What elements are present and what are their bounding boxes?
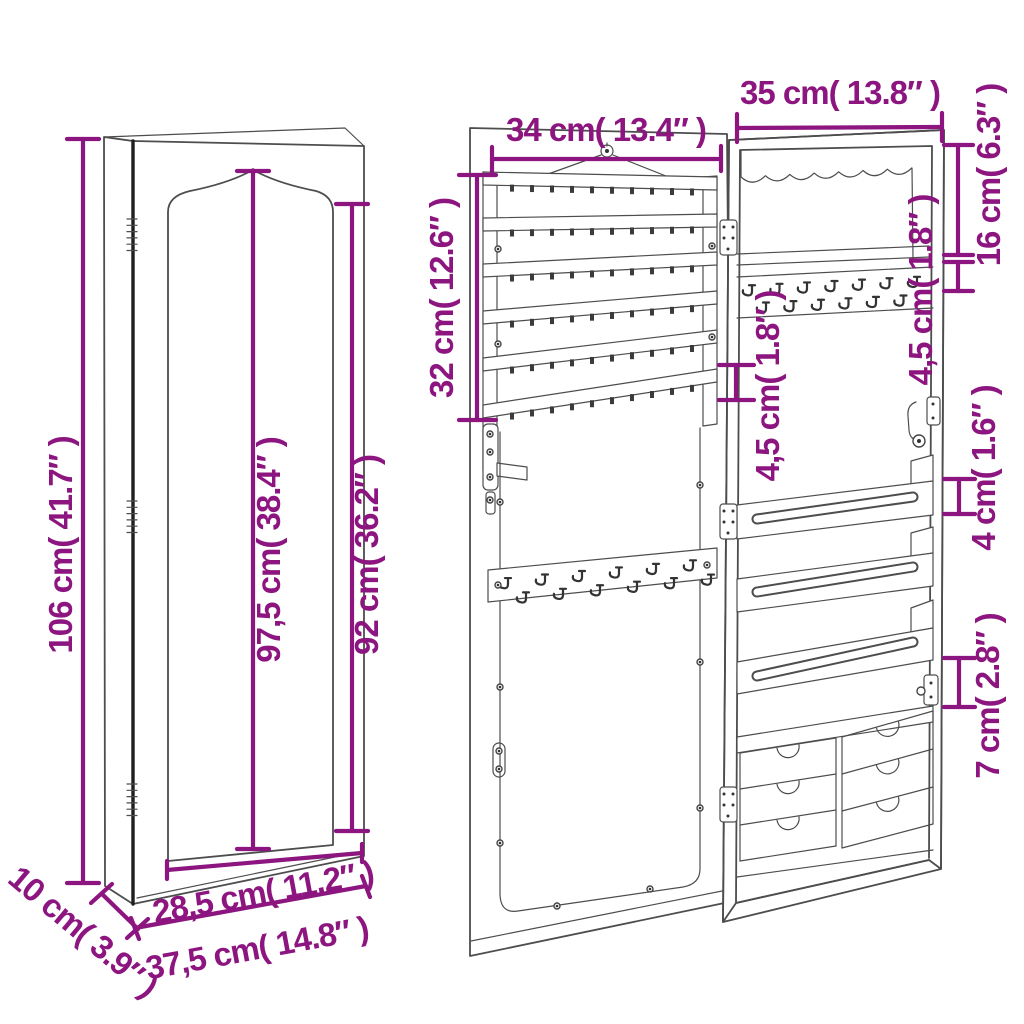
dim-mirror-height-label: 97,5 cm( 38.4″ ) bbox=[250, 437, 287, 662]
dim-tray-height: 4 cm( 1.6″ ) bbox=[944, 385, 1002, 550]
dim-overall-height: 106 cm( 41.7″ ) bbox=[42, 139, 99, 883]
dim-shelf-clearance-label: 4,5 cm( 1.8″ ) bbox=[902, 195, 939, 386]
dim-drawer-clearance-label: 7 cm( 2.8″ ) bbox=[969, 613, 1006, 778]
dim-cabinet-width-label: 35 cm( 13.8″ ) bbox=[740, 74, 940, 111]
dim-front-height-label: 92 cm( 36.2″ ) bbox=[348, 455, 385, 655]
open-door-view bbox=[470, 128, 734, 956]
dim-door-rack-spacing-label: 4,5 cm( 1.8″ ) bbox=[749, 291, 786, 482]
dim-door-rack-width-label: 34 cm( 13.4″ ) bbox=[506, 111, 706, 148]
dim-top-compartment-height-label: 16 cm( 6.3″ ) bbox=[970, 84, 1007, 267]
dim-overall-height-label: 106 cm( 41.7″ ) bbox=[42, 436, 79, 653]
door-outline bbox=[470, 128, 734, 956]
dim-top-compartment-height: 16 cm( 6.3″ ) bbox=[944, 84, 1007, 267]
closed-cabinet-view bbox=[104, 128, 364, 904]
dimension-diagram: 106 cm( 41.7″ ) 97,5 cm( 38.4″ ) 92 cm( … bbox=[0, 0, 1024, 1024]
dim-tray-height-label: 4 cm( 1.6″ ) bbox=[965, 385, 1002, 550]
dim-door-rack-height-label: 32 cm( 12.6″ ) bbox=[423, 198, 460, 398]
dim-drawer-clearance: 7 cm( 2.8″ ) bbox=[944, 613, 1006, 778]
dim-shelf-clearance: 4,5 cm( 1.8″ ) bbox=[902, 195, 973, 386]
